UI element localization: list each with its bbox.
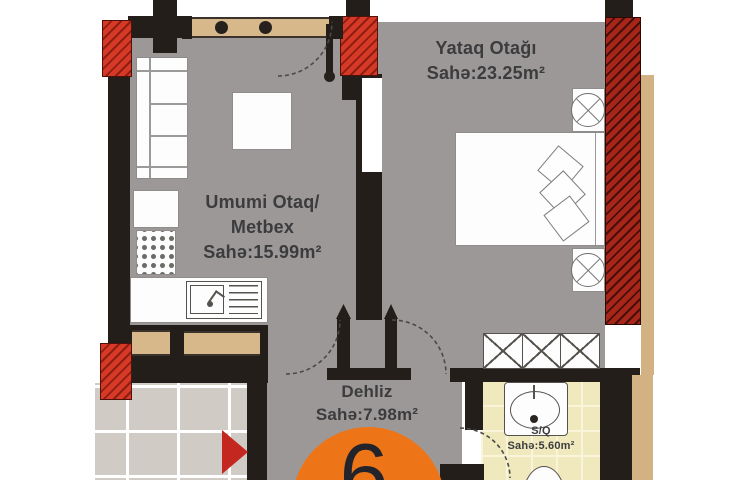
wardrobe [483, 333, 600, 369]
living-area: Sahə:15.99m² [175, 240, 350, 265]
window-balcony-right [184, 331, 260, 356]
hallway-area: Sahə:7.98m² [292, 403, 442, 426]
sofa [136, 57, 188, 179]
living-name-line2: Metbex [175, 215, 350, 240]
wall-stub-top-left [153, 0, 177, 53]
wall-entry-threshold [327, 368, 411, 380]
living-name-line1: Umumi Otaq/ [175, 190, 350, 215]
hallway-name: Dehliz [292, 380, 442, 403]
entry-door-left-leaf [337, 318, 350, 372]
room-label-bathroom: S/Q Sahə:5.60m² [495, 424, 587, 454]
bathroom-name: S/Q [495, 424, 587, 439]
dining-table [232, 92, 292, 150]
lamp-icon [571, 253, 605, 287]
kitchen-cabinet [133, 190, 179, 228]
bedroom-name: Yataq Otağı [376, 36, 596, 61]
window-frame-cap-left [182, 16, 192, 39]
room-label-bedroom: Yataq Otağı Sahə:23.25m² [376, 36, 596, 86]
wall-stub-divider-top [346, 0, 370, 17]
room-label-hallway: Dehliz Sahə:7.98m² [292, 380, 442, 426]
facade-trim-right [641, 75, 654, 375]
stove [136, 230, 176, 275]
bathroom-door-leaf [440, 464, 484, 480]
bathroom-area: Sahə:5.60m² [495, 439, 587, 454]
bearing-wall-right [605, 17, 641, 325]
wall-stub-bedroom-top-right [605, 0, 633, 17]
balcony-door-leaf [326, 24, 333, 74]
lamp-icon [571, 93, 605, 127]
kitchen-sink-unit [186, 281, 262, 319]
kitchen-drainboard [229, 285, 258, 314]
window-mullion-dot [215, 21, 228, 34]
column-divider-top [340, 16, 378, 76]
column-top-left [102, 20, 132, 77]
column-bottom-left [100, 343, 132, 400]
room-label-living-kitchen: Umumi Otaq/ Metbex Sahə:15.99m² [175, 190, 350, 265]
bedroom-area: Sahə:23.25m² [376, 61, 596, 86]
floor-plan: Yataq Otağı Sahə:23.25m² Umumi Otaq/ Met… [0, 0, 730, 480]
wall-bathroom-right [600, 372, 632, 480]
doorway-bedroom-opening [362, 78, 382, 172]
window-balcony-left [132, 330, 170, 356]
wall-divider-jog [342, 74, 358, 100]
window-mullion-dot [259, 21, 272, 34]
unit-number: 6 [318, 424, 410, 480]
facade-trim-bottom-right [632, 375, 653, 480]
balcony-door-triangle [222, 430, 248, 474]
wall-bathroom-left [465, 378, 483, 430]
entry-door-right-leaf [385, 318, 397, 372]
bed [455, 132, 605, 246]
wall-balcony-right [247, 377, 267, 480]
kitchen-sink-basin [190, 285, 224, 314]
door-hinge-dot [324, 71, 335, 82]
